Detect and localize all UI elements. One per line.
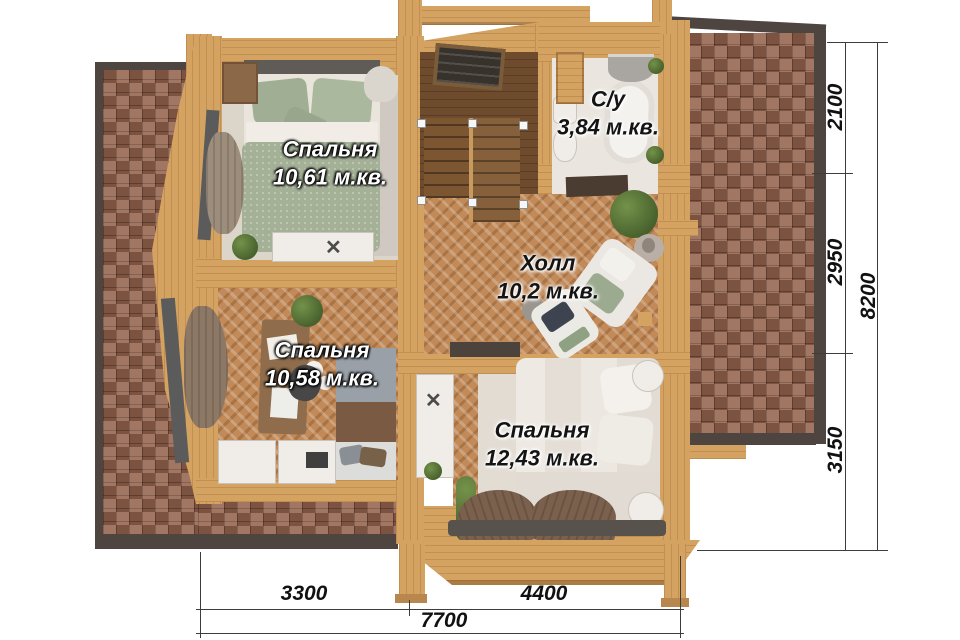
room-area: 12,43 м.кв. xyxy=(485,444,599,472)
stair-baluster xyxy=(417,196,426,205)
curtain-rail xyxy=(448,520,666,536)
bedroom2-plant xyxy=(291,295,323,327)
dim-extension-line xyxy=(812,173,853,174)
stair-baluster xyxy=(519,200,528,209)
dim-extension-line xyxy=(812,353,853,354)
right-roof-shingles xyxy=(688,33,815,435)
bottom-roof-shingles xyxy=(198,500,398,535)
dim-label-2950: 2950 xyxy=(824,217,848,307)
dim-extension-line xyxy=(680,556,681,638)
room-label-bedroom-top-left: Спальня 10,61 м.кв. xyxy=(273,136,387,191)
dim-extension-line xyxy=(697,550,888,551)
right-roof-ledge xyxy=(686,445,746,459)
stair-flight-right xyxy=(473,118,520,222)
room-name: Спальня xyxy=(485,417,599,445)
corner-chair xyxy=(364,66,398,102)
room-name: Спальня xyxy=(273,136,387,164)
pillow xyxy=(596,413,655,466)
dim-extension-line xyxy=(827,42,888,43)
dim-line-horizontal-total xyxy=(196,633,684,634)
stair-flight-left xyxy=(424,118,469,198)
curtain xyxy=(206,132,244,234)
bathroom-plant xyxy=(646,146,664,164)
room-label-bedroom-bottom-right: Спальня 12,43 м.кв. xyxy=(485,417,599,472)
hall-mat xyxy=(450,342,520,357)
hall-potted-plant xyxy=(610,190,658,238)
stair-baluster xyxy=(468,119,477,128)
room-area: 10,61 м.кв. xyxy=(273,163,387,191)
room-label-bathroom: С/у 3,84 м.кв. xyxy=(557,86,659,141)
post-leg xyxy=(664,544,686,602)
right-roof-edge-bottom xyxy=(686,433,816,445)
dim-label-7700: 7700 xyxy=(399,609,489,633)
stair-baluster xyxy=(468,198,477,207)
dim-label-8200: 8200 xyxy=(857,251,881,341)
hall-vase xyxy=(642,238,655,253)
mid-wall-left xyxy=(196,258,422,288)
dresser xyxy=(218,440,276,484)
dim-label-2100: 2100 xyxy=(824,62,848,152)
bottom-roof-edge xyxy=(95,534,398,549)
room-label-hall: Холл 10,2 м.кв. xyxy=(497,250,599,305)
bathroom-plant xyxy=(648,58,664,74)
stair-baluster xyxy=(519,121,528,130)
bay-window-deck xyxy=(392,540,704,588)
room-area: 3,84 м.кв. xyxy=(557,113,659,141)
floor-plan: ✕ ✕ 2100 2950 3150 xyxy=(0,0,960,640)
bedroom1-plant xyxy=(232,234,258,260)
round-nightstand xyxy=(632,360,664,392)
dim-label-3300: 3300 xyxy=(259,582,349,606)
right-exterior-wall xyxy=(656,20,690,544)
stair-baluster xyxy=(417,119,426,128)
pillow xyxy=(359,446,387,467)
ottoman-pillow xyxy=(540,300,576,333)
room-name: С/у xyxy=(557,86,659,114)
dim-label-4400: 4400 xyxy=(499,582,589,606)
room-area: 10,58 м.кв. xyxy=(265,364,379,392)
nightstand xyxy=(222,62,258,104)
curtain xyxy=(184,306,228,428)
room-name: Холл xyxy=(497,250,599,278)
floor-block xyxy=(638,312,652,326)
room-label-bedroom-bottom-left: Спальня 10,58 м.кв. xyxy=(265,337,379,392)
wardrobe-plant xyxy=(424,462,442,480)
tv-screen xyxy=(306,452,328,468)
dresser-cross-icon: ✕ xyxy=(325,238,342,258)
dim-extension-line xyxy=(200,552,201,638)
room-area: 10,2 м.кв. xyxy=(497,277,599,305)
post-foot xyxy=(395,594,427,603)
towel-rack xyxy=(608,54,654,82)
post-leg xyxy=(399,544,425,598)
dim-label-3150: 3150 xyxy=(824,405,848,495)
wardrobe-cross-icon: ✕ xyxy=(425,391,442,411)
stair-window xyxy=(432,43,505,91)
daybed-blanket xyxy=(336,402,396,444)
room-name: Спальня xyxy=(265,337,379,365)
dresser: ✕ xyxy=(272,232,374,262)
post-foot xyxy=(661,598,689,607)
